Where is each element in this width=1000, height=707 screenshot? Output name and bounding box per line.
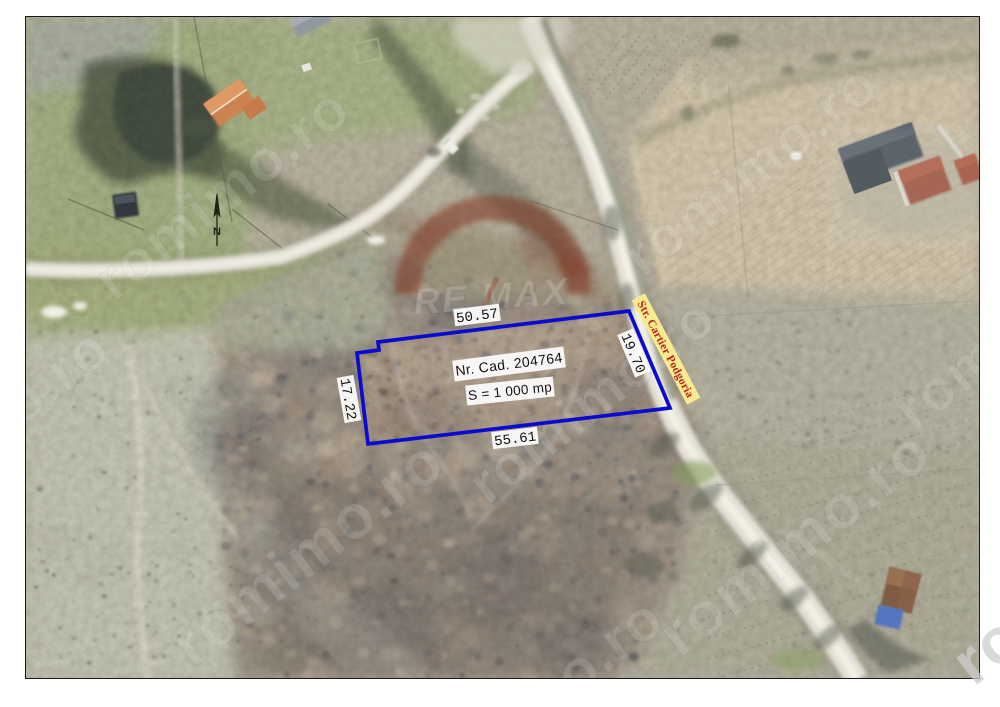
svg-text:N: N: [213, 226, 221, 238]
